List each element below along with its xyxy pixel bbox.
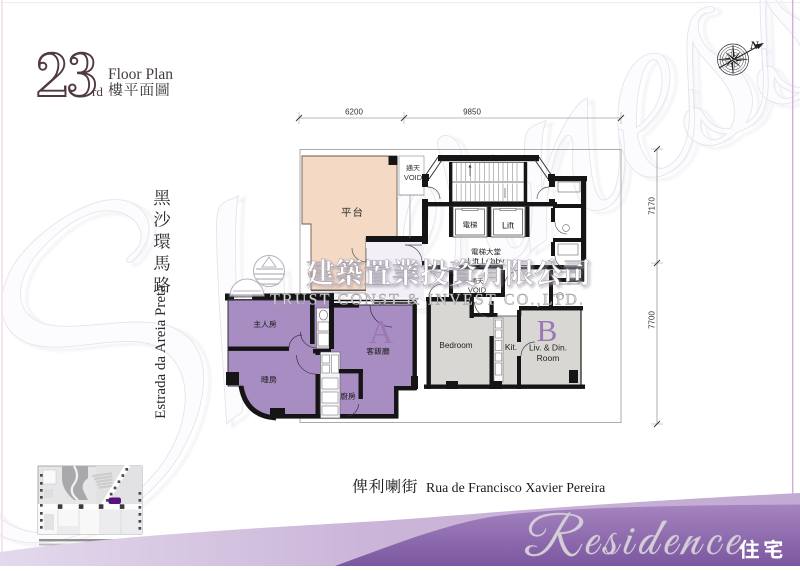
svg-text:N: N bbox=[749, 38, 760, 52]
svg-text:Liv. & Din.: Liv. & Din. bbox=[529, 343, 567, 353]
svg-text:Room: Room bbox=[537, 353, 560, 363]
svg-text:6200: 6200 bbox=[345, 108, 363, 117]
svg-text:Floor Plan: Floor Plan bbox=[108, 66, 173, 83]
svg-text:Estrada da Areia Preta: Estrada da Areia Preta bbox=[153, 285, 169, 419]
svg-text:Rua de Francisco Xavier Pereir: Rua de Francisco Xavier Pereira bbox=[426, 480, 605, 495]
svg-text:7170: 7170 bbox=[648, 197, 657, 215]
svg-text:Bedroom: Bedroom bbox=[439, 341, 472, 350]
svg-text:Lift: Lift bbox=[502, 221, 515, 231]
svg-text:9850: 9850 bbox=[463, 108, 481, 117]
svg-text:A: A bbox=[369, 314, 394, 351]
svg-text:VOID: VOID bbox=[404, 173, 423, 182]
svg-text:7700: 7700 bbox=[648, 311, 657, 329]
svg-text:rd: rd bbox=[92, 84, 103, 99]
svg-text:TRUST CONST & INVEST CO.,LTD.: TRUST CONST & INVEST CO.,LTD. bbox=[270, 292, 585, 309]
svg-text:Kit.: Kit. bbox=[505, 342, 517, 352]
